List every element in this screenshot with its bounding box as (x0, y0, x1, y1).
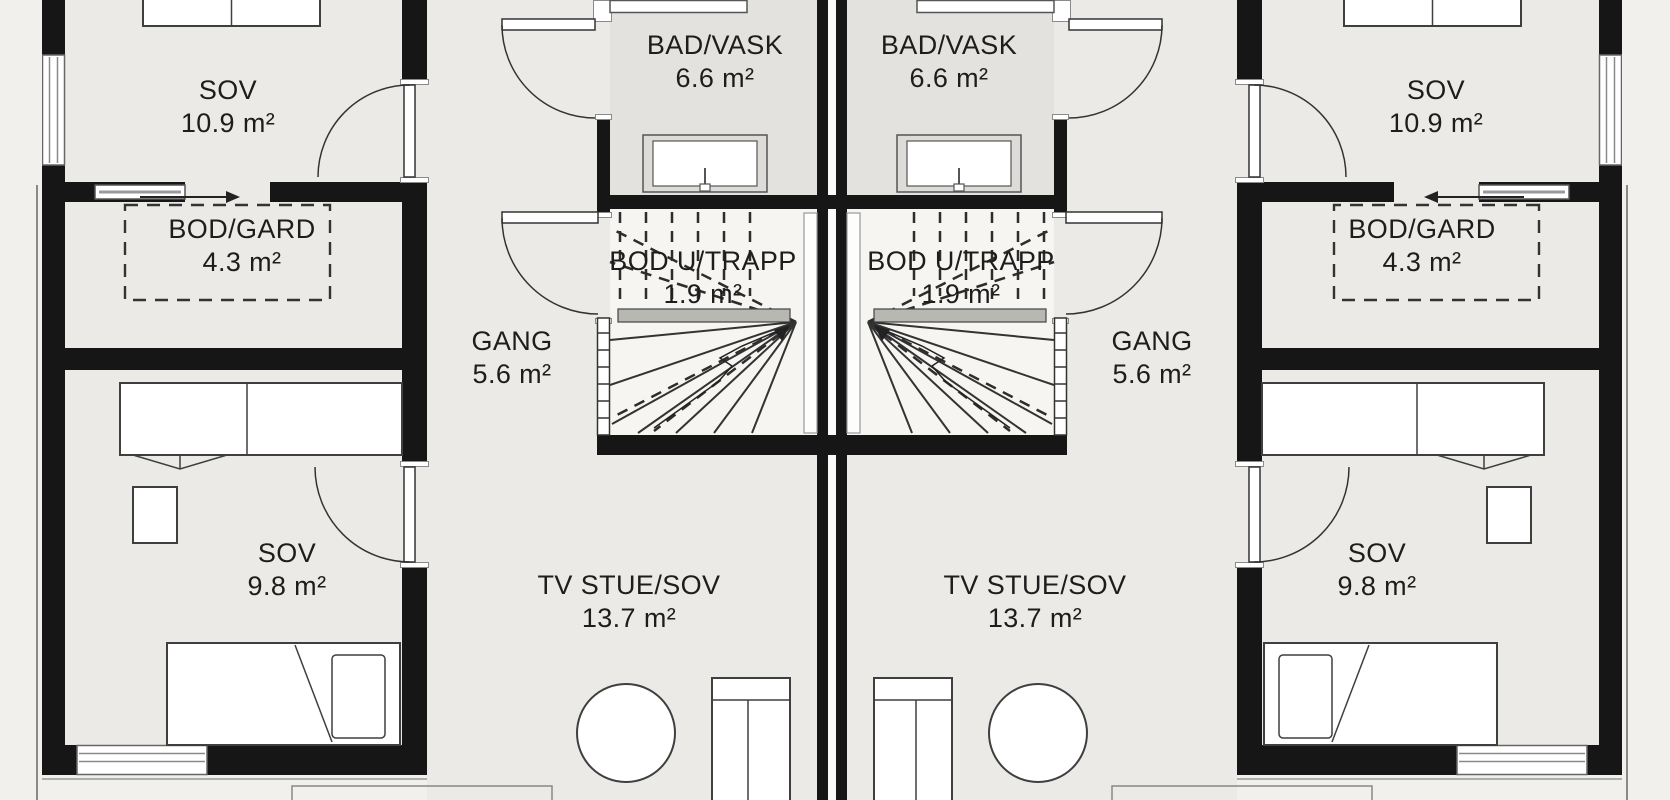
stair-railing (598, 318, 610, 435)
room-area: 6.6 m² (881, 62, 1017, 95)
room-label-gang-right: GANG 5.6 m² (1111, 325, 1192, 391)
room-name: SOV (248, 537, 327, 570)
room-label-gang-left: GANG 5.6 m² (471, 325, 552, 391)
room-area: 13.7 m² (538, 602, 721, 635)
wardrobe (1262, 383, 1544, 469)
room-name: SOV (1338, 537, 1417, 570)
room-name: BAD/VASK (881, 29, 1017, 62)
party-wall-gap (828, 209, 836, 435)
room-label-sov-lower-right: SOV 9.8 m² (1338, 537, 1417, 603)
door-swing (318, 85, 415, 177)
door-swing (502, 19, 595, 118)
room-name: TV STUE/SOV (944, 569, 1127, 602)
window (1600, 55, 1622, 165)
room-area: 9.8 m² (248, 570, 327, 603)
room-label-bod-u-trapp-left: BOD U/TRAPP 1.9 m² (609, 245, 796, 311)
room-area: 5.6 m² (1111, 358, 1192, 391)
party-wall-gap (828, 0, 836, 195)
room-area: 10.9 m² (181, 107, 275, 140)
round-table (989, 684, 1087, 782)
terrace-outline (1112, 779, 1622, 800)
window (1457, 746, 1587, 775)
room-label-sov-upper-right: SOV 10.9 m² (1389, 74, 1483, 140)
unit-left (42, 0, 832, 800)
wardrobe (120, 383, 402, 469)
room-label-tv-stue-left: TV STUE/SOV 13.7 m² (538, 569, 721, 635)
unit-geometry-svg (42, 0, 832, 800)
room-label-sov-upper-left: SOV 10.9 m² (181, 74, 275, 140)
door-swing (1066, 212, 1162, 314)
room-label-bad-vask-left: BAD/VASK 6.6 m² (647, 29, 783, 95)
window (77, 746, 207, 775)
terrace-outline (42, 779, 552, 800)
room-label-bod-gard-left: BOD/GARD 4.3 m² (168, 213, 315, 279)
room-label-sov-lower-left: SOV 9.8 m² (248, 537, 327, 603)
window (43, 55, 65, 165)
room-label-tv-stue-right: TV STUE/SOV 13.7 m² (944, 569, 1127, 635)
room-area: 4.3 m² (1348, 246, 1495, 279)
door-swing (502, 212, 598, 314)
room-area: 4.3 m² (168, 246, 315, 279)
room-area: 1.9 m² (609, 278, 796, 311)
single-bed (167, 643, 400, 745)
door-swing (1249, 85, 1346, 177)
roof-overhang-line (36, 185, 38, 800)
door-swing (315, 467, 415, 562)
room-area: 1.9 m² (867, 278, 1054, 311)
sofa (874, 678, 952, 800)
room-area: 10.9 m² (1389, 107, 1483, 140)
door-swing (1069, 19, 1162, 118)
desk (133, 487, 177, 543)
room-name: SOV (181, 74, 275, 107)
floorplan-canvas: SOV 10.9 m² BAD/VASK 6.6 m² BOD/GARD 4.3… (0, 0, 1670, 800)
room-name: BAD/VASK (647, 29, 783, 62)
room-area: 9.8 m² (1338, 570, 1417, 603)
room-name: BOD U/TRAPP (867, 245, 1054, 278)
stair-railing (1055, 318, 1067, 435)
room-name: BOD/GARD (1348, 213, 1495, 246)
room-label-bad-vask-right: BAD/VASK 6.6 m² (881, 29, 1017, 95)
room-name: TV STUE/SOV (538, 569, 721, 602)
vanity-sink (897, 135, 1021, 192)
room-name: GANG (1111, 325, 1192, 358)
room-area: 13.7 m² (944, 602, 1127, 635)
room-label-bod-gard-right: BOD/GARD 4.3 m² (1348, 213, 1495, 279)
vanity-sink (643, 135, 767, 192)
room-name: SOV (1389, 74, 1483, 107)
single-bed (1264, 643, 1497, 745)
party-wall-gap (828, 455, 836, 800)
room-name: BOD U/TRAPP (609, 245, 796, 278)
room-label-bod-u-trapp-right: BOD U/TRAPP 1.9 m² (867, 245, 1054, 311)
room-area: 5.6 m² (471, 358, 552, 391)
round-table (577, 684, 675, 782)
bath-counter (917, 1, 1054, 13)
unit-geometry-svg (832, 0, 1622, 800)
roof-overhang-line (1626, 185, 1628, 800)
bath-counter (610, 1, 747, 13)
unit-right (832, 0, 1622, 800)
room-name: BOD/GARD (168, 213, 315, 246)
room-name: GANG (471, 325, 552, 358)
sofa (712, 678, 790, 800)
desk (1487, 487, 1531, 543)
door-swing (1249, 467, 1349, 562)
double-bed (143, 0, 320, 26)
room-area: 6.6 m² (647, 62, 783, 95)
double-bed (1344, 0, 1521, 26)
